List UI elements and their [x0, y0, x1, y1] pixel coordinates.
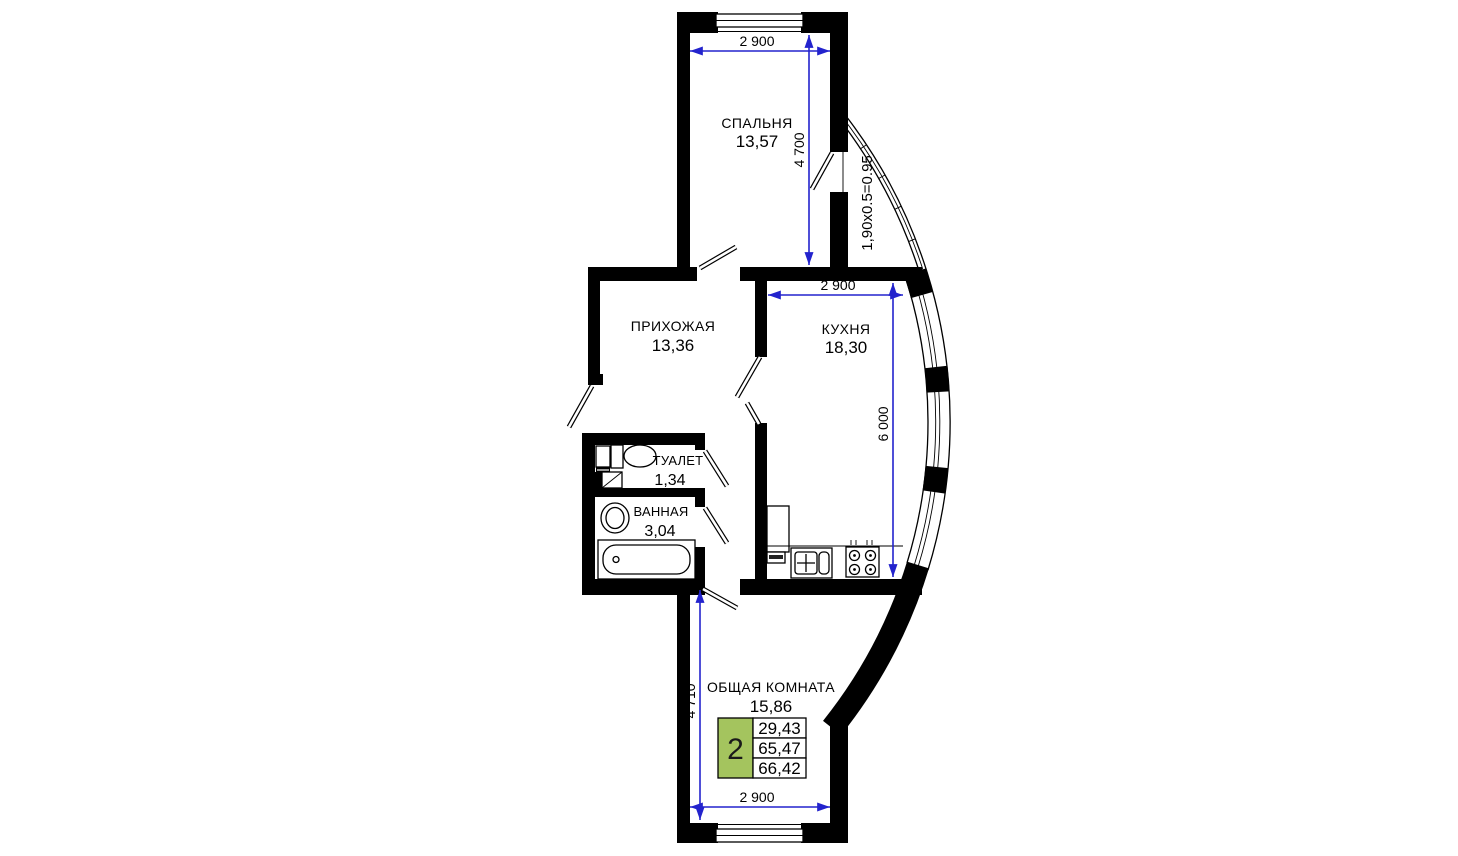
vent-shaft-icon [595, 472, 622, 488]
kitchen-door-leaf [737, 357, 760, 424]
kitchen-sink-icon [791, 548, 832, 578]
floor-plan-canvas: 2 900 4 700 1,90x0.5=0.95 2 900 6 000 4 … [0, 0, 1458, 856]
dim-living-depth-label: 4 710 [682, 683, 698, 718]
toilet-door-leaf [705, 451, 727, 486]
room-bedroom-name: СПАЛЬНЯ [721, 115, 792, 131]
room-bathroom-name: ВАННАЯ [634, 504, 689, 519]
bathroom-door-leaf [705, 508, 727, 543]
info-table: 2 29,43 65,47 66,42 [718, 718, 806, 778]
balcony-glazing [840, 116, 927, 274]
dimension-bedroom-depth: 4 700 [791, 35, 809, 265]
toilet-duct-icon [596, 446, 610, 473]
area-without-balcony-value: 65,47 [758, 739, 801, 758]
dim-living-width-label: 2 900 [739, 789, 774, 805]
entry-door-leaf [569, 386, 592, 427]
dim-kitchen-depth-label: 6 000 [875, 406, 891, 441]
balcony-door-leaf [812, 153, 832, 189]
living-door-leaf [703, 589, 737, 608]
rooms-count-value: 2 [727, 733, 744, 766]
bedroom-door-leaf [700, 247, 736, 268]
room-kitchen-area: 18,30 [825, 338, 868, 357]
room-living-area: 15,86 [750, 697, 793, 716]
room-toilet-name: ТУАЛЕТ [653, 453, 704, 468]
room-kitchen-name: КУХНЯ [822, 321, 871, 337]
room-hallway-name: ПРИХОЖАЯ [631, 318, 716, 334]
living-area-value: 29,43 [758, 719, 801, 738]
kitchen-duct-icon [767, 506, 789, 563]
window-bottom [716, 825, 803, 843]
bath-sink-icon [601, 503, 629, 533]
bathtub-icon [598, 540, 695, 579]
toilet-icon [611, 445, 656, 468]
dimension-balcony: 1,90x0.5=0.95 [859, 155, 876, 251]
dimension-kitchen-depth: 6 000 [875, 283, 893, 577]
dimension-living-width: 2 900 [690, 789, 830, 807]
room-bathroom-area: 3,04 [644, 523, 675, 540]
dim-bedroom-depth-label: 4 700 [791, 132, 807, 167]
total-area-value: 66,42 [758, 759, 801, 778]
room-bedroom-area: 13,57 [736, 132, 779, 151]
window-top [716, 14, 803, 32]
dim-balcony-label: 1,90x0.5=0.95 [859, 155, 876, 251]
room-hallway-area: 13,36 [652, 336, 695, 355]
room-living-name: ОБЩАЯ КОМНАТА [707, 679, 835, 695]
floor-plan: 2 900 4 700 1,90x0.5=0.95 2 900 6 000 4 … [0, 0, 1458, 856]
kitchen-curved-window [906, 272, 950, 570]
dim-bedroom-width-label: 2 900 [739, 33, 774, 49]
dim-kitchen-width-label: 2 900 [820, 277, 855, 293]
room-toilet-area: 1,34 [654, 472, 685, 489]
